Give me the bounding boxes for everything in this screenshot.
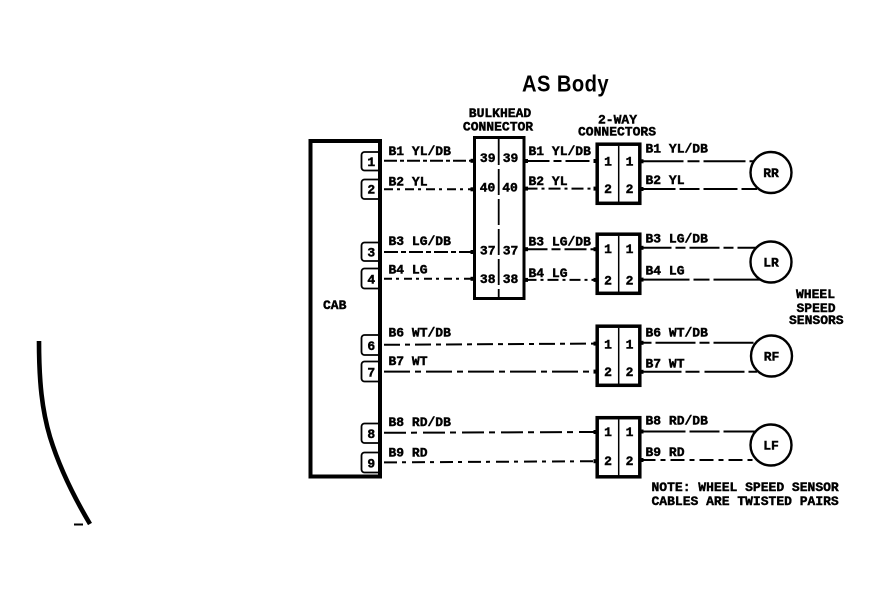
- svg-text:8: 8: [367, 427, 375, 442]
- svg-text:AS Body: AS Body: [522, 71, 609, 97]
- svg-text:B3 LG/DB: B3 LG/DB: [646, 232, 709, 247]
- svg-text:B7 WT: B7 WT: [389, 354, 428, 369]
- svg-text:B4 LG: B4 LG: [389, 262, 428, 277]
- svg-text:1: 1: [626, 338, 634, 353]
- svg-text:B2 YL: B2 YL: [529, 174, 568, 189]
- svg-text:CAB: CAB: [323, 298, 347, 313]
- svg-text:CABLES ARE TWISTED PAIRS: CABLES ARE TWISTED PAIRS: [652, 494, 839, 509]
- svg-text:B3 LG/DB: B3 LG/DB: [529, 235, 592, 250]
- svg-text:6: 6: [367, 339, 375, 354]
- svg-text:3: 3: [367, 245, 375, 260]
- svg-text:1: 1: [604, 338, 612, 353]
- svg-text:1: 1: [604, 155, 612, 170]
- svg-text:2: 2: [626, 454, 634, 469]
- svg-text:B4 LG: B4 LG: [646, 264, 685, 279]
- svg-text:B6 WT/DB: B6 WT/DB: [646, 326, 709, 341]
- svg-text:2: 2: [626, 365, 634, 380]
- svg-text:1: 1: [626, 155, 634, 170]
- svg-text:B4 LG: B4 LG: [529, 266, 568, 281]
- svg-text:2: 2: [604, 454, 612, 469]
- svg-text:B1 YL/DB: B1 YL/DB: [529, 144, 592, 159]
- svg-text:B8 RD/DB: B8 RD/DB: [389, 415, 452, 430]
- svg-text:40: 40: [502, 181, 518, 196]
- svg-text:B9 RD: B9 RD: [646, 445, 685, 460]
- svg-text:B2 YL: B2 YL: [646, 173, 685, 188]
- svg-text:WHEEL: WHEEL: [796, 287, 835, 302]
- svg-text:2: 2: [604, 274, 612, 289]
- svg-text:NOTE: WHEEL SPEED SENSOR: NOTE: WHEEL SPEED SENSOR: [652, 480, 839, 495]
- svg-text:CONNECTORS: CONNECTORS: [578, 125, 656, 140]
- svg-text:RR: RR: [763, 166, 779, 181]
- svg-text:9: 9: [367, 456, 375, 471]
- svg-text:2: 2: [626, 182, 634, 197]
- svg-text:B2 YL: B2 YL: [389, 175, 428, 190]
- svg-text:1: 1: [604, 425, 612, 440]
- svg-text:B1 YL/DB: B1 YL/DB: [646, 142, 709, 157]
- svg-text:LF: LF: [763, 439, 779, 454]
- svg-text:39: 39: [480, 151, 496, 166]
- svg-text:4: 4: [367, 272, 375, 287]
- svg-text:B1 YL/DB: B1 YL/DB: [389, 144, 452, 159]
- svg-text:B8 RD/DB: B8 RD/DB: [646, 414, 709, 429]
- svg-text:CONNECTOR: CONNECTOR: [463, 120, 533, 135]
- svg-text:B9 RD: B9 RD: [389, 446, 428, 461]
- svg-text:39: 39: [503, 151, 519, 166]
- svg-text:RF: RF: [764, 350, 780, 365]
- svg-text:B7 WT: B7 WT: [646, 356, 685, 371]
- svg-text:37: 37: [503, 243, 519, 258]
- svg-text:LR: LR: [763, 256, 779, 271]
- svg-text:38: 38: [480, 272, 496, 287]
- svg-text:40: 40: [480, 181, 496, 196]
- svg-text:2: 2: [604, 182, 612, 197]
- svg-text:1: 1: [367, 155, 375, 170]
- svg-text:2: 2: [626, 274, 634, 289]
- svg-text:2: 2: [367, 183, 375, 198]
- svg-text:1: 1: [626, 242, 634, 257]
- svg-text:B3 LG/DB: B3 LG/DB: [389, 234, 452, 249]
- svg-text:7: 7: [367, 365, 375, 380]
- svg-text:SENSORS: SENSORS: [789, 313, 844, 328]
- svg-text:37: 37: [480, 243, 496, 258]
- svg-text:1: 1: [604, 242, 612, 257]
- svg-text:B6 WT/DB: B6 WT/DB: [389, 326, 452, 341]
- svg-text:1: 1: [626, 425, 634, 440]
- svg-text:38: 38: [503, 272, 519, 287]
- svg-text:2: 2: [604, 365, 612, 380]
